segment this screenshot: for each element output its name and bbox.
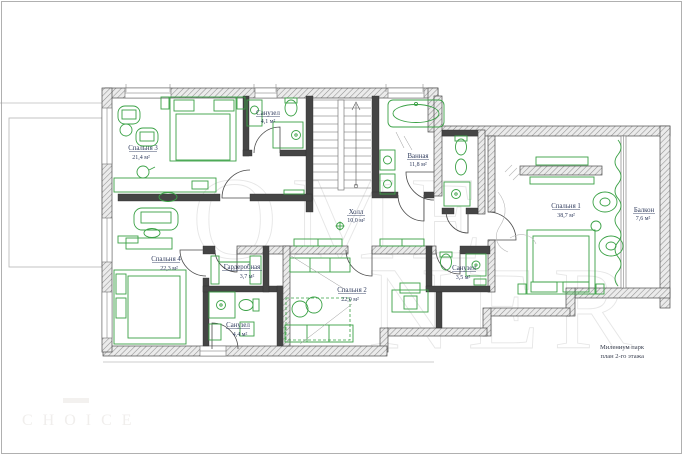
room-name: Спальня 1: [551, 203, 581, 210]
room-area: 4,4 м²: [233, 332, 248, 338]
corner-logo-mark: [63, 398, 89, 403]
room-name: Спальня 2: [337, 287, 367, 294]
project-name: Милениум парк: [600, 344, 645, 351]
room-name: Санузел: [452, 265, 476, 272]
room-area: 38,7 м²: [557, 213, 575, 219]
room-area: 10,0 м²: [347, 218, 365, 224]
furniture-bedroom4: [114, 229, 186, 345]
terrace-outline: [0, 103, 102, 267]
room-name: Гардеробная: [224, 264, 261, 271]
room-name: Санузел: [256, 110, 280, 117]
rug-dashed: [286, 298, 350, 340]
room-name: Холл: [349, 209, 364, 216]
corner-logo-text: CHOICE: [22, 412, 142, 429]
room-name: Спальня 4: [151, 256, 181, 263]
label-bedroom2: Спальня 2 22,0 м²: [337, 287, 367, 303]
label-bedroom3: Спальня 3 21,4 м²: [128, 145, 158, 161]
room-name: Ванная: [408, 153, 429, 160]
stair-railing: [338, 100, 344, 190]
label-balcony: Балкон 7,6 м²: [633, 207, 655, 222]
room-area: 4,1 м²: [261, 119, 276, 125]
watermark-corner: CHOICE: [22, 398, 142, 429]
floor-plan-page: OME NER CHOICE: [0, 0, 683, 455]
room-area: 22,0 м²: [341, 297, 359, 303]
room-area: 7,6 м²: [636, 216, 651, 222]
sheet-name: план 2-го этажа: [601, 353, 645, 360]
room-area: 11,8 м²: [409, 162, 427, 168]
floor-plan-drawing: OME NER CHOICE: [0, 0, 683, 455]
room-area: 3,5 м²: [456, 275, 471, 281]
room-area: 22,3 м²: [160, 266, 178, 272]
room-name: Спальня 3: [128, 145, 158, 152]
room-name: Санузел: [226, 322, 250, 329]
room-name: Балкон: [634, 207, 655, 214]
label-bedroom1: Спальня 1 38,7 м²: [551, 203, 581, 219]
label-wc-top: Санузел 4,1 м²: [256, 110, 280, 125]
room-area: 21,4 м²: [132, 155, 150, 161]
room-area: 3,7 м²: [240, 274, 255, 280]
